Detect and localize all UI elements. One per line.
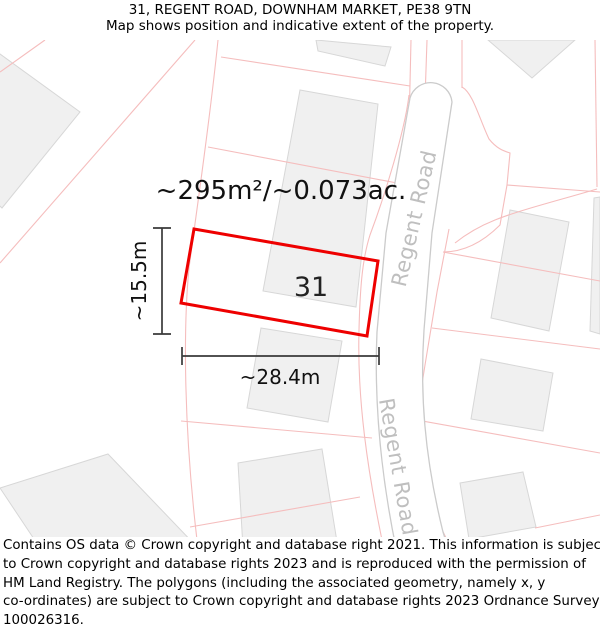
copyright-line: to Crown copyright and database rights 2…: [0, 556, 600, 575]
plot-number-label: 31: [294, 272, 328, 303]
copyright-line: co-ordinates) are subject to Crown copyr…: [0, 593, 600, 612]
dimension-height-label: ~15.5m: [127, 241, 151, 322]
page-subtitle: Map shows position and indicative extent…: [0, 18, 600, 34]
report-header: 31, REGENT ROAD, DOWNHAM MARKET, PE38 9T…: [0, 0, 600, 40]
page-title: 31, REGENT ROAD, DOWNHAM MARKET, PE38 9T…: [0, 0, 600, 18]
property-map: Regent Road Regent Road 31 ~295m²/~0.073…: [0, 0, 600, 625]
building: [460, 472, 536, 539]
copyright-notice: Contains OS data © Crown copyright and d…: [0, 537, 600, 625]
dimension-width-label: ~28.4m: [240, 365, 321, 389]
area-label: ~295m²/~0.073ac.: [156, 176, 407, 206]
copyright-line: HM Land Registry. The polygons (includin…: [0, 575, 600, 594]
copyright-line: 100026316.: [0, 612, 600, 631]
building: [238, 449, 338, 548]
copyright-line: Contains OS data © Crown copyright and d…: [0, 537, 600, 556]
